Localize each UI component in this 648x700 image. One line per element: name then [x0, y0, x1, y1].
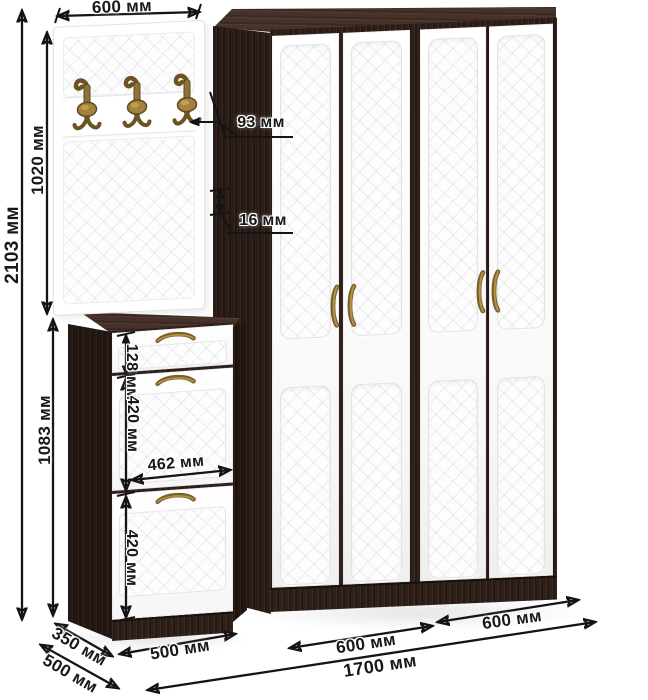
coat-hook-icon: [69, 74, 105, 140]
furniture-dimension-diagram: 600 мм 2103 мм 1020 мм 1083 мм 93 мм 16 …: [0, 0, 648, 700]
upper-door-height-label: 420 мм: [123, 396, 141, 453]
drawer-front-height-label: 128 мм: [122, 344, 140, 401]
total-height-label: 2103 мм: [2, 206, 24, 284]
drawer-handle-icon: [153, 372, 197, 387]
door-handle-icon: [329, 283, 341, 330]
door-upper-quilted-panel: [428, 37, 478, 333]
door-upper-quilted-panel: [351, 40, 402, 336]
coat-hook-icon: [119, 71, 155, 137]
hanger-panel-height-label: 1020 мм: [28, 125, 48, 195]
coat-hook-icon: [169, 69, 205, 135]
coat-hanger-panel: [53, 20, 205, 316]
door-upper-quilted-panel: [280, 43, 331, 339]
lower-door-height-label: 420 мм: [122, 530, 140, 587]
door-lower-quilted-panel: [280, 385, 331, 585]
hanger-panel-lower-quilted-section: [63, 135, 195, 304]
hook-projection-label: 93 мм: [237, 114, 284, 132]
door-lower-quilted-panel: [351, 382, 402, 582]
door-upper-quilted-panel: [497, 34, 545, 330]
door-handle-icon: [490, 268, 502, 315]
hanger-width-label: 600 мм: [92, 0, 153, 18]
wardrobe-front: [270, 17, 557, 612]
drawer-handle-icon: [153, 490, 197, 505]
shoe-cabinet-height-label: 1083 мм: [35, 395, 55, 465]
door-lower-quilted-panel: [497, 376, 545, 576]
door-handle-icon: [475, 269, 487, 316]
panel-thickness-label: 16 мм: [239, 212, 286, 230]
door-lower-quilted-panel: [428, 379, 478, 579]
door-handle-icon: [346, 282, 358, 329]
